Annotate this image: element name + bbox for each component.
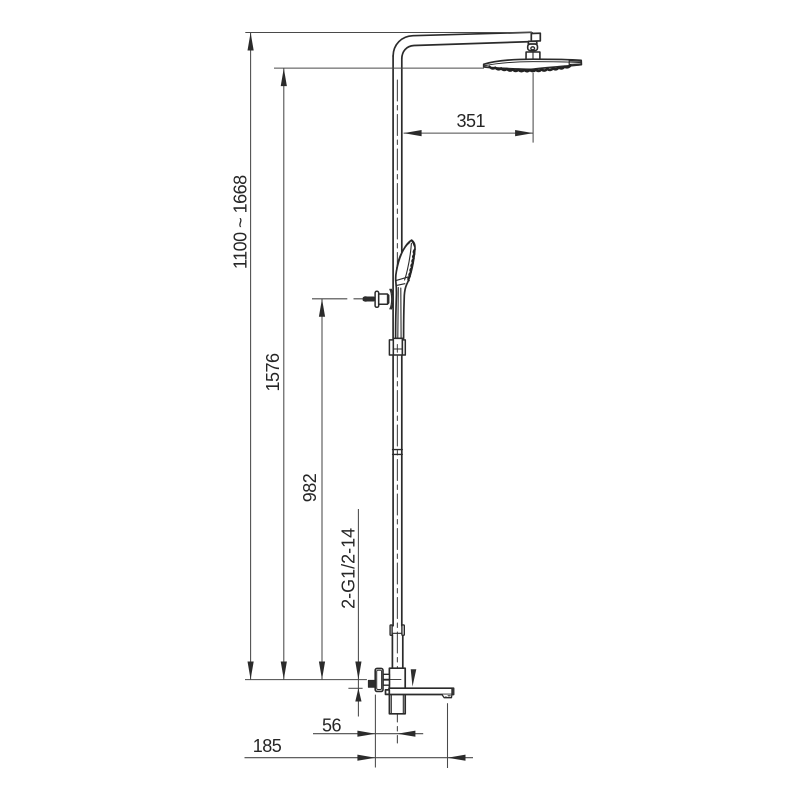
svg-text:1100 ~ 1668: 1100 ~ 1668 [231,175,251,269]
svg-text:982: 982 [300,473,320,502]
svg-text:2-G1/2-14: 2-G1/2-14 [339,528,359,609]
svg-text:1576: 1576 [263,353,283,392]
svg-text:351: 351 [457,111,486,131]
svg-text:56: 56 [322,716,342,736]
svg-text:185: 185 [253,736,282,756]
